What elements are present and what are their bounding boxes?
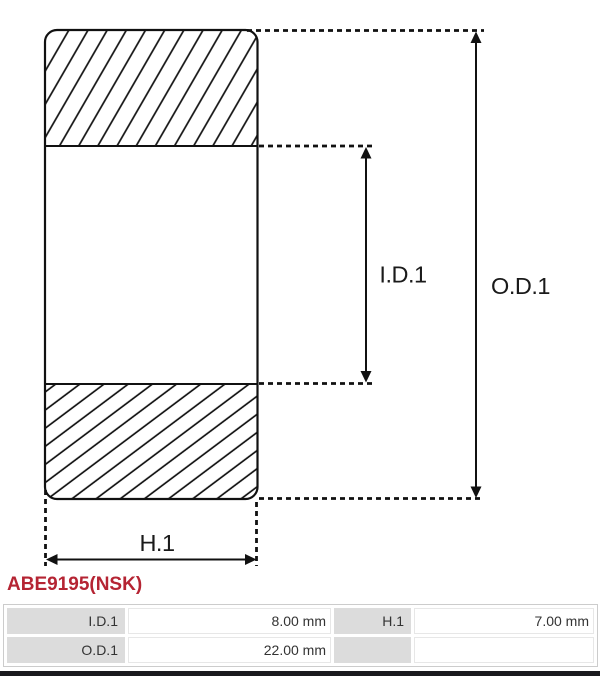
svg-text:H.1: H.1 [139, 530, 174, 556]
svg-text:O.D.1: O.D.1 [491, 273, 550, 299]
svg-text:I.D.1: I.D.1 [379, 262, 426, 288]
